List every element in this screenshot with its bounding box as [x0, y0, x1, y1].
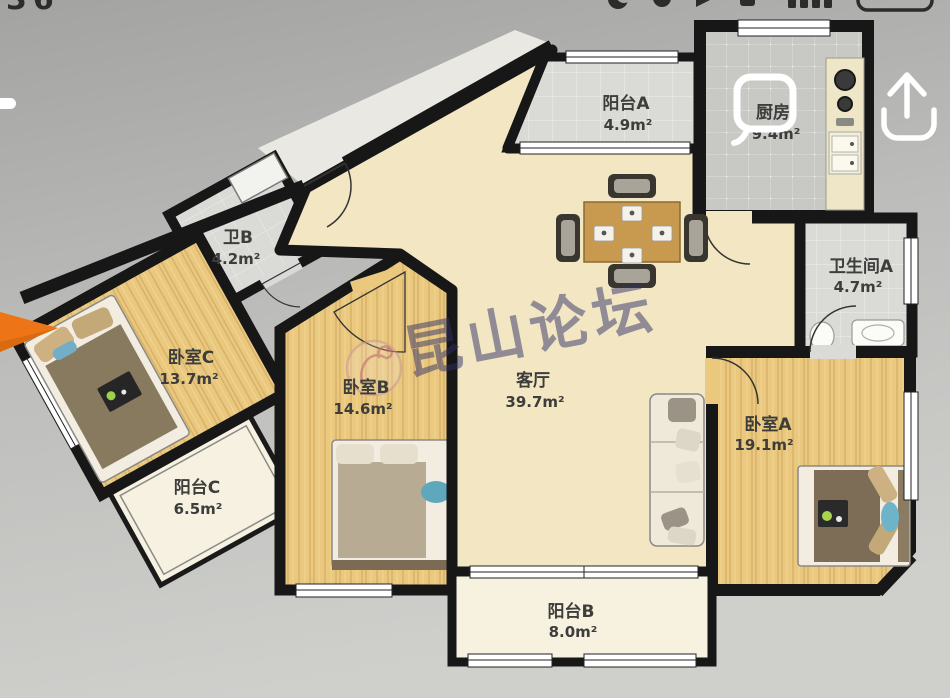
- label-bath-b: 卫B: [223, 228, 253, 248]
- floor-plan-image: 昆山论坛 阳台A 4.9m² 厨房 9.4m² 卫B 4.2m² 卫生间A 4.…: [0, 0, 950, 698]
- label-balcony-c: 阳台C: [174, 477, 220, 498]
- floorplan-screenshot: 昆山论坛 阳台A 4.9m² 厨房 9.4m² 卫B 4.2m² 卫生间A 4.…: [0, 0, 950, 698]
- bed-a: [798, 464, 910, 566]
- area-living: 39.7m²: [505, 393, 564, 411]
- room-bedroom-a: [712, 352, 916, 596]
- area-bath-b: 4.2m²: [212, 250, 261, 268]
- washbasin: [852, 320, 904, 346]
- status-time-fragment: 36: [6, 0, 60, 17]
- area-bath-a: 4.7m²: [834, 278, 883, 296]
- kitchen-counter: [826, 58, 864, 210]
- label-bath-a: 卫生间A: [829, 256, 894, 277]
- label-kitchen: 厨房: [756, 102, 790, 123]
- sofa: [650, 394, 704, 546]
- label-living: 客厅: [515, 370, 550, 391]
- label-bedroom-c: 卧室C: [168, 347, 214, 368]
- label-balcony-a: 阳台A: [602, 93, 650, 114]
- label-bedroom-a: 卧室A: [744, 414, 792, 435]
- area-bedroom-b: 14.6m²: [333, 400, 392, 418]
- area-balcony-b: 8.0m²: [549, 623, 598, 641]
- bed-b: [332, 440, 454, 570]
- label-balcony-b: 阳台B: [548, 601, 595, 622]
- edge-handle: [0, 98, 16, 109]
- area-balcony-c: 6.5m²: [174, 500, 223, 518]
- area-bedroom-c: 13.7m²: [159, 370, 218, 388]
- label-bedroom-b: 卧室B: [343, 377, 390, 398]
- area-bedroom-a: 19.1m²: [734, 436, 793, 454]
- area-balcony-a: 4.9m²: [604, 116, 653, 134]
- app-status-icon: [740, 0, 755, 6]
